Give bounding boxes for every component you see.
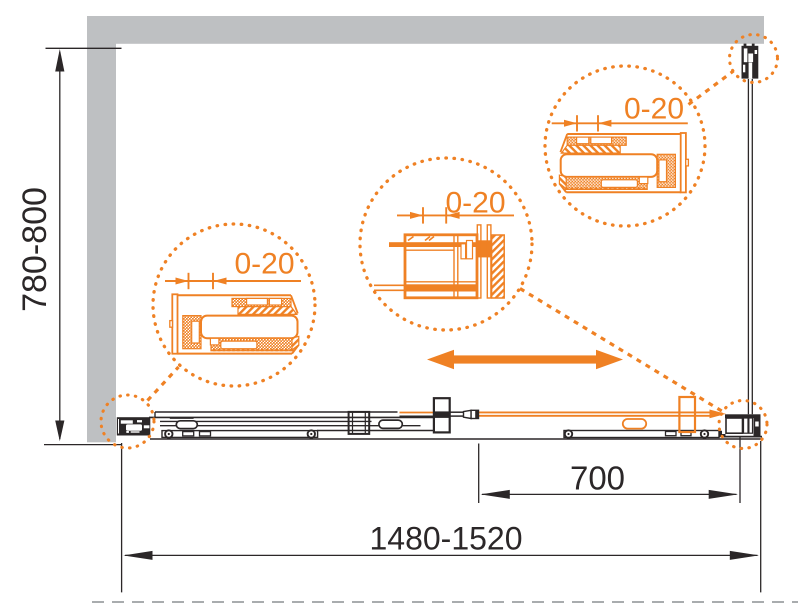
svg-text:0-20: 0-20	[624, 93, 684, 126]
svg-text:780-800: 780-800	[16, 187, 54, 312]
svg-text:1480-1520: 1480-1520	[369, 521, 522, 557]
svg-text:0-20: 0-20	[234, 248, 294, 281]
svg-text:0-20: 0-20	[445, 187, 505, 220]
svg-text:700: 700	[570, 460, 625, 497]
